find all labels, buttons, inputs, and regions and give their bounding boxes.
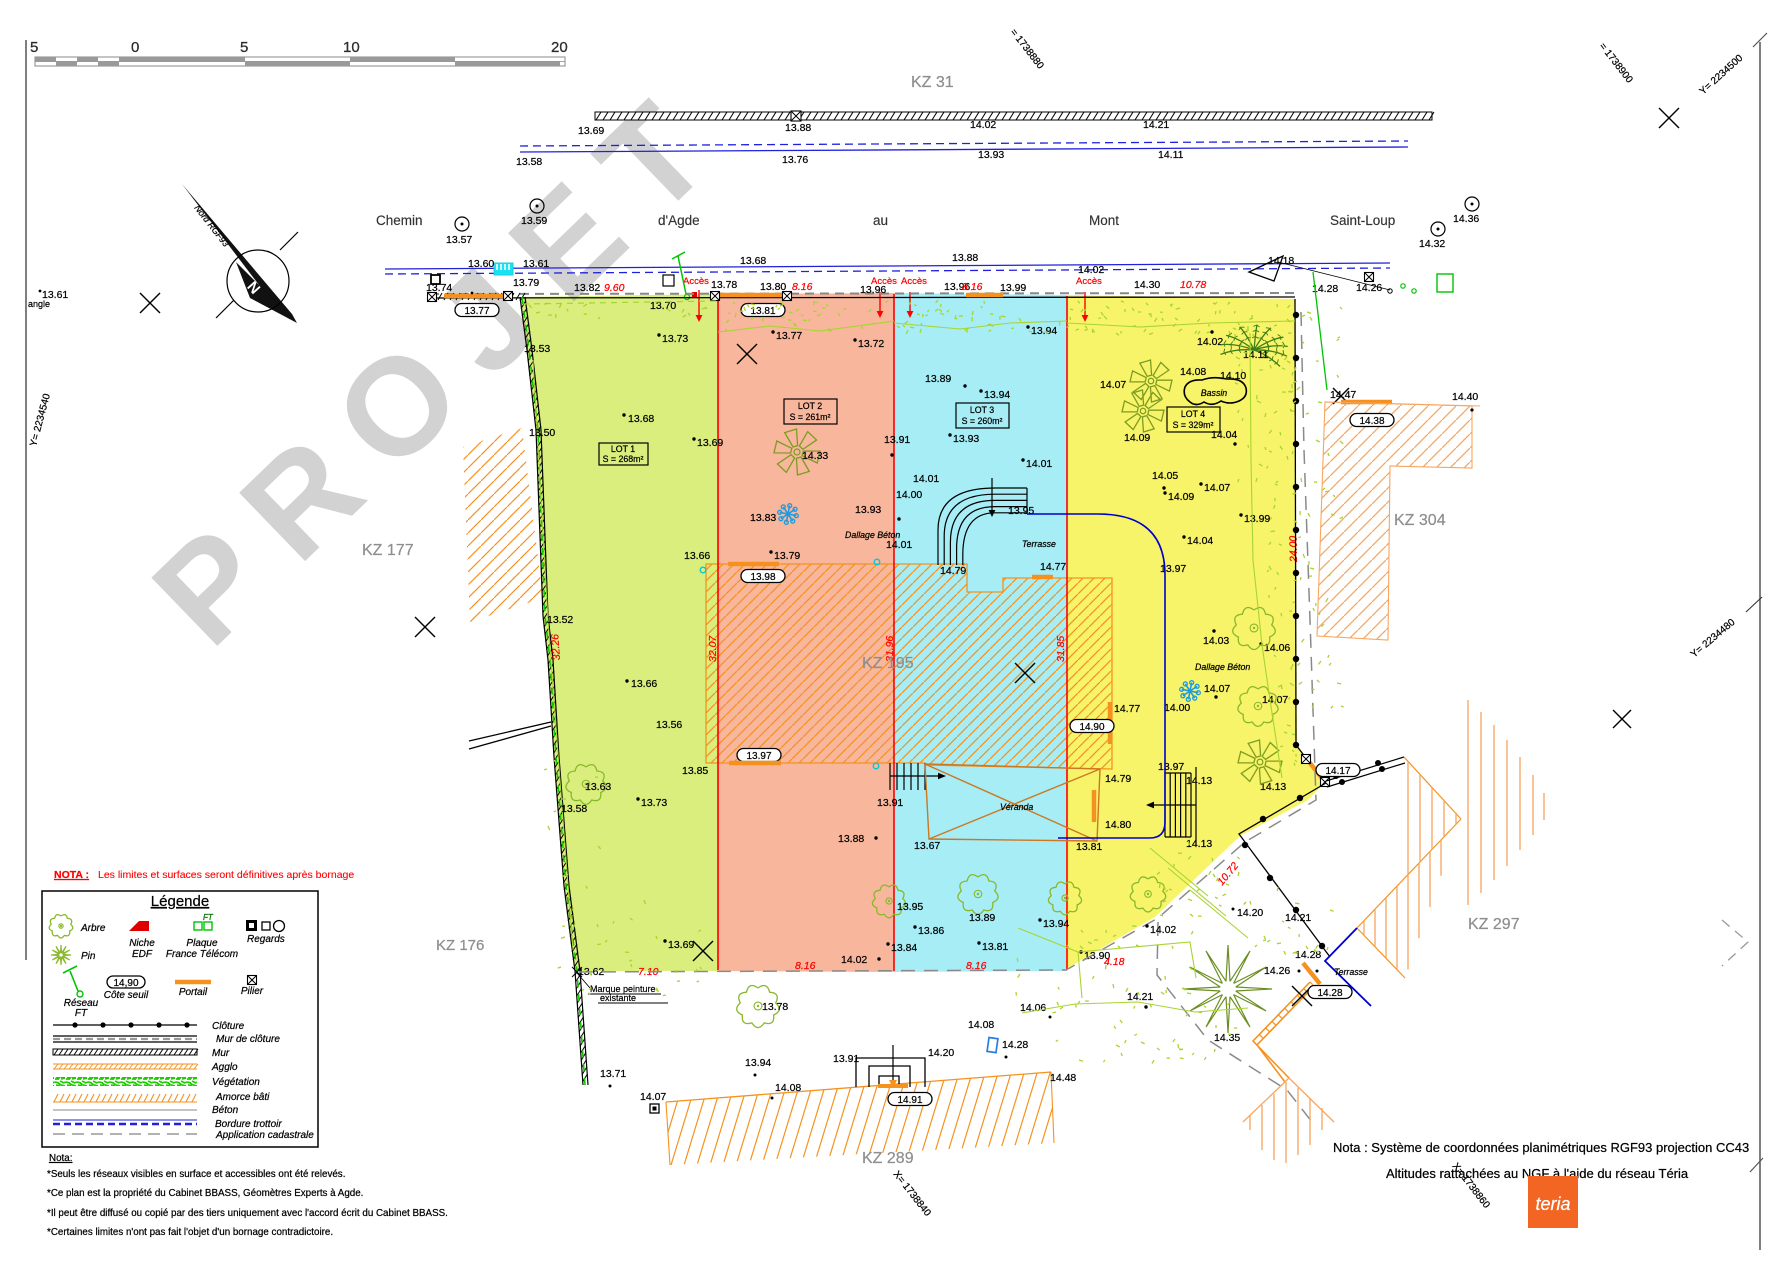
svg-text:9.60: 9.60 — [604, 282, 625, 294]
svg-text:Regards: Regards — [247, 934, 285, 945]
svg-text:14.26: 14.26 — [1356, 282, 1382, 294]
svg-text:13.91: 13.91 — [884, 434, 910, 446]
svg-text:13.73: 13.73 — [641, 797, 667, 809]
svg-text:Application cadastrale: Application cadastrale — [215, 1130, 314, 1141]
svg-text:14.05: 14.05 — [1152, 470, 1178, 482]
svg-text:Mont: Mont — [1089, 213, 1119, 228]
svg-text:13.79: 13.79 — [513, 277, 539, 289]
svg-text:14.11: 14.11 — [1158, 149, 1184, 161]
svg-text:Saint-Loup: Saint-Loup — [1330, 213, 1395, 228]
svg-text:14.11: 14.11 — [1243, 349, 1269, 361]
svg-text:0: 0 — [131, 39, 139, 56]
svg-text:13.76: 13.76 — [782, 154, 808, 166]
svg-text:FT: FT — [203, 913, 214, 922]
svg-text:13.63: 13.63 — [585, 781, 611, 793]
svg-text:13.89: 13.89 — [925, 373, 951, 385]
svg-text:14.48: 14.48 — [1050, 1072, 1076, 1084]
svg-text:13.73: 13.73 — [662, 333, 688, 345]
svg-text:13.66: 13.66 — [631, 678, 657, 690]
svg-text:Plaque: Plaque — [186, 938, 218, 949]
svg-text:KZ 31: KZ 31 — [911, 74, 954, 91]
svg-text:14.91: 14.91 — [897, 1095, 922, 1106]
svg-text:KZ 177: KZ 177 — [362, 542, 414, 559]
svg-text:Nota:: Nota: — [49, 1153, 72, 1164]
svg-text:13.94: 13.94 — [745, 1057, 771, 1069]
svg-text:13.50: 13.50 — [529, 427, 555, 439]
svg-text:14.77: 14.77 — [1040, 561, 1066, 573]
svg-text:Amorce bâti: Amorce bâti — [215, 1092, 270, 1103]
svg-text:14.32: 14.32 — [1419, 238, 1445, 250]
svg-text:Accès: Accès — [901, 276, 927, 287]
svg-text:14.07: 14.07 — [1204, 683, 1230, 695]
svg-text:Clôture: Clôture — [212, 1021, 245, 1032]
svg-text:FT: FT — [75, 1008, 88, 1019]
svg-text:13.69: 13.69 — [697, 437, 723, 449]
svg-text:14,90: 14,90 — [113, 978, 138, 989]
svg-text:Terrasse: Terrasse — [1334, 967, 1368, 977]
svg-text:14.79: 14.79 — [1105, 773, 1131, 785]
svg-text:Véranda: Véranda — [1000, 802, 1033, 812]
svg-text:S = 261m²: S = 261m² — [790, 412, 831, 422]
svg-text:13.99: 13.99 — [1244, 513, 1270, 525]
svg-text:13.94: 13.94 — [1043, 918, 1069, 930]
svg-text:13.93: 13.93 — [855, 504, 881, 516]
svg-text:13.98: 13.98 — [750, 572, 775, 583]
svg-text:14.17: 14.17 — [1325, 766, 1350, 777]
svg-text:14.90: 14.90 — [1079, 722, 1104, 733]
svg-text:KZ 195: KZ 195 — [862, 655, 914, 672]
svg-text:Chemin: Chemin — [376, 213, 423, 228]
svg-text:14.21: 14.21 — [1285, 912, 1311, 924]
svg-text:14.01: 14.01 — [886, 539, 912, 551]
svg-text:*Ce plan est la propriété du C: *Ce plan est la propriété du Cabinet BBA… — [47, 1188, 363, 1199]
svg-text:14.07: 14.07 — [640, 1091, 666, 1103]
svg-text:Les limites et surfaces seront: Les limites et surfaces seront définitiv… — [98, 869, 354, 881]
svg-text:14.09: 14.09 — [1124, 432, 1150, 444]
svg-text:13.77: 13.77 — [464, 306, 489, 317]
svg-text:14.09: 14.09 — [1168, 491, 1194, 503]
svg-text:14.80: 14.80 — [1105, 819, 1131, 831]
svg-text:EDF: EDF — [132, 949, 153, 960]
svg-text:Béton: Béton — [212, 1105, 239, 1116]
svg-text:*Il peut être diffusé ou copié: *Il peut être diffusé ou copié par des t… — [47, 1208, 448, 1219]
svg-text:8.16: 8.16 — [962, 281, 983, 293]
svg-text:20: 20 — [551, 39, 568, 56]
svg-text:14.28: 14.28 — [1002, 1039, 1028, 1051]
svg-text:14.04: 14.04 — [1187, 535, 1213, 547]
svg-text:14.02: 14.02 — [1197, 336, 1223, 348]
svg-text:13.59: 13.59 — [521, 215, 547, 227]
svg-text:KZ 289: KZ 289 — [862, 1150, 914, 1167]
svg-text:13.72: 13.72 — [858, 338, 884, 350]
svg-text:14.02: 14.02 — [841, 954, 867, 966]
svg-text:13.67: 13.67 — [914, 840, 940, 852]
svg-text:13.94: 13.94 — [1031, 325, 1057, 337]
svg-text:13.69: 13.69 — [668, 939, 694, 951]
svg-text:13.91: 13.91 — [877, 797, 903, 809]
svg-text:Nota : Système de coordonnées: Nota : Système de coordonnées planimétri… — [1333, 1140, 1749, 1155]
svg-text:13.88: 13.88 — [785, 122, 811, 134]
svg-text:Terrasse: Terrasse — [1022, 539, 1056, 549]
svg-text:13.97: 13.97 — [746, 751, 771, 762]
svg-text:31.85: 31.85 — [1055, 636, 1067, 662]
svg-text:32.07: 32.07 — [707, 635, 719, 662]
svg-text:Pilier: Pilier — [241, 986, 264, 997]
svg-text:13.89: 13.89 — [969, 912, 995, 924]
svg-text:14.36: 14.36 — [1453, 213, 1479, 225]
svg-text:Arbre: Arbre — [80, 923, 106, 934]
svg-text:KZ 304: KZ 304 — [1394, 512, 1446, 529]
svg-text:14.01: 14.01 — [913, 473, 939, 485]
svg-text:24.00: 24.00 — [1288, 536, 1300, 564]
svg-text:5: 5 — [30, 39, 38, 56]
svg-text:Végétation: Végétation — [212, 1077, 260, 1088]
svg-text:13.80: 13.80 — [760, 281, 786, 293]
svg-text:KZ 297: KZ 297 — [1468, 916, 1520, 933]
svg-text:LOT 4: LOT 4 — [1181, 409, 1205, 419]
svg-text:LOT 2: LOT 2 — [798, 401, 822, 411]
svg-text:13.69: 13.69 — [578, 125, 604, 137]
svg-text:Accès: Accès — [683, 276, 709, 287]
svg-text:13.66: 13.66 — [684, 550, 710, 562]
svg-text:14.13: 14.13 — [1186, 838, 1212, 850]
svg-text:8.16: 8.16 — [795, 960, 816, 972]
svg-text:13.79: 13.79 — [774, 550, 800, 562]
svg-text:13.81: 13.81 — [1076, 841, 1102, 853]
svg-text:14.38: 14.38 — [1359, 416, 1384, 427]
svg-text:angle: angle — [28, 299, 50, 309]
svg-text:13.86: 13.86 — [918, 925, 944, 937]
svg-text:14.07: 14.07 — [1100, 379, 1126, 391]
svg-text:14.07: 14.07 — [1204, 482, 1230, 494]
svg-text:13.56: 13.56 — [656, 719, 682, 731]
svg-text:14.01: 14.01 — [1026, 458, 1052, 470]
svg-text:13.88: 13.88 — [952, 252, 978, 264]
svg-text:10: 10 — [343, 39, 360, 56]
svg-text:14.08: 14.08 — [968, 1019, 994, 1031]
svg-text:13.85: 13.85 — [682, 765, 708, 777]
svg-text:14.00: 14.00 — [1164, 702, 1190, 714]
svg-text:S = 260m²: S = 260m² — [962, 416, 1003, 426]
svg-text:14.04: 14.04 — [1211, 429, 1237, 441]
svg-text:13.96: 13.96 — [860, 284, 886, 296]
svg-text:13.68: 13.68 — [740, 255, 766, 267]
svg-text:Dallage Béton: Dallage Béton — [1195, 662, 1250, 672]
svg-text:Accès: Accès — [1076, 276, 1102, 287]
svg-text:13.84: 13.84 — [891, 942, 917, 954]
svg-text:14.00: 14.00 — [896, 489, 922, 501]
svg-text:13.57: 13.57 — [446, 234, 472, 246]
svg-text:Pin: Pin — [81, 951, 96, 962]
svg-text:14.08: 14.08 — [775, 1082, 801, 1094]
svg-text:14.02: 14.02 — [1150, 924, 1176, 936]
svg-text:Bordure trottoir: Bordure trottoir — [215, 1119, 282, 1130]
svg-text:14.33: 14.33 — [802, 450, 828, 462]
svg-text:13.52: 13.52 — [547, 614, 573, 626]
svg-text:13.71: 13.71 — [600, 1068, 626, 1080]
svg-text:LOT 1: LOT 1 — [611, 444, 635, 454]
svg-text:14.26: 14.26 — [1264, 965, 1290, 977]
svg-text:13.74: 13.74 — [426, 282, 452, 294]
svg-text:13.58: 13.58 — [561, 803, 587, 815]
svg-text:13.77: 13.77 — [776, 330, 802, 342]
svg-text:10.78: 10.78 — [1180, 279, 1206, 291]
svg-text:14.30: 14.30 — [1134, 279, 1160, 291]
svg-text:Mur: Mur — [212, 1048, 230, 1059]
svg-text:14.21: 14.21 — [1127, 991, 1153, 1003]
svg-text:14.02: 14.02 — [1078, 264, 1104, 276]
svg-text:14.40: 14.40 — [1452, 391, 1478, 403]
svg-text:13.93: 13.93 — [953, 433, 979, 445]
svg-text:32.26: 32.26 — [549, 633, 563, 660]
svg-text:13.53: 13.53 — [524, 343, 550, 355]
svg-text:Bassin: Bassin — [1201, 388, 1228, 398]
svg-text:14.79: 14.79 — [940, 565, 966, 577]
svg-text:d'Agde: d'Agde — [658, 213, 700, 228]
svg-text:14.08: 14.08 — [1180, 366, 1206, 378]
svg-text:au: au — [873, 213, 888, 228]
svg-text:Agglo: Agglo — [211, 1062, 238, 1073]
svg-text:Niche: Niche — [129, 938, 155, 949]
svg-text:S = 329m²: S = 329m² — [1173, 420, 1214, 430]
svg-text:*Seuls les réseaux visibles en: *Seuls les réseaux visibles en surface e… — [47, 1169, 345, 1180]
svg-text:14.20: 14.20 — [928, 1047, 954, 1059]
svg-text:13.78: 13.78 — [762, 1001, 788, 1013]
svg-text:14.03: 14.03 — [1203, 635, 1229, 647]
svg-text:13.99: 13.99 — [1000, 282, 1026, 294]
svg-text:13.78: 13.78 — [711, 279, 737, 291]
svg-text:14.35: 14.35 — [1214, 1032, 1240, 1044]
svg-text:13.60: 13.60 — [468, 258, 494, 270]
svg-text:14.28: 14.28 — [1317, 988, 1342, 999]
svg-text:13.68: 13.68 — [628, 413, 654, 425]
svg-text:13.61: 13.61 — [523, 258, 549, 270]
svg-text:14.13: 14.13 — [1186, 775, 1212, 787]
svg-text:KZ 176: KZ 176 — [436, 937, 484, 954]
svg-text:NOTA :: NOTA : — [54, 869, 89, 881]
svg-text:Portail: Portail — [179, 987, 208, 998]
svg-text:France Télécom: France Télécom — [166, 949, 238, 960]
svg-text:Légende: Légende — [151, 893, 209, 910]
svg-text:14.77: 14.77 — [1114, 703, 1140, 715]
svg-text:5: 5 — [240, 39, 248, 56]
svg-text:Côte seuil: Côte seuil — [104, 990, 149, 1001]
svg-text:13.88: 13.88 — [838, 833, 864, 845]
svg-text:13.70: 13.70 — [650, 300, 676, 312]
svg-text:13.58: 13.58 — [516, 156, 542, 168]
svg-text:14.20: 14.20 — [1237, 907, 1263, 919]
svg-text:Mur de clôture: Mur de clôture — [216, 1034, 280, 1045]
svg-text:13.93: 13.93 — [978, 149, 1004, 161]
svg-text:existante: existante — [600, 993, 636, 1003]
svg-text:*Certaines limites n'ont pas f: *Certaines limites n'ont pas fait l'obje… — [47, 1227, 333, 1238]
svg-text:14.21: 14.21 — [1143, 119, 1169, 131]
svg-text:13.97: 13.97 — [1158, 761, 1184, 773]
svg-text:teria: teria — [1535, 1194, 1570, 1214]
svg-text:S = 268m²: S = 268m² — [603, 454, 644, 464]
svg-text:LOT 3: LOT 3 — [970, 405, 994, 415]
svg-text:4.18: 4.18 — [1104, 956, 1125, 968]
svg-text:13.94: 13.94 — [984, 389, 1010, 401]
svg-text:8.16: 8.16 — [792, 281, 813, 293]
svg-text:13.81: 13.81 — [982, 941, 1008, 953]
svg-text:13.81: 13.81 — [750, 306, 775, 317]
svg-text:13.83: 13.83 — [750, 512, 776, 524]
svg-text:14.02: 14.02 — [970, 119, 996, 131]
svg-text:13.82: 13.82 — [574, 282, 600, 294]
svg-text:13.95: 13.95 — [897, 901, 923, 913]
